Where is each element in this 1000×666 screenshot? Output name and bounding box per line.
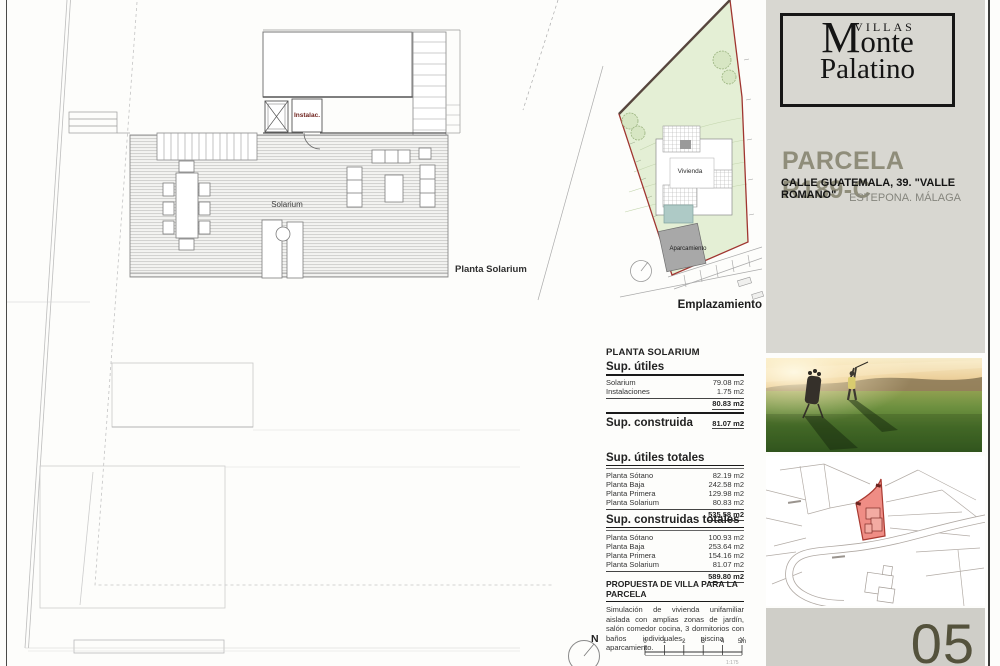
- map-houses: [865, 565, 895, 603]
- north-label: N: [591, 633, 599, 645]
- row-label: Planta Primera: [606, 551, 656, 560]
- page-number-panel: 05: [766, 608, 985, 666]
- sun-lounger: [347, 167, 362, 207]
- row-value: 1.75 m2: [717, 387, 744, 396]
- road-cars: [737, 277, 763, 299]
- sheet-border-right: [988, 0, 990, 666]
- utiles-totales-title: Sup. útiles totales: [606, 452, 744, 466]
- row-value: 129.98 m2: [709, 489, 744, 498]
- row-value: 154.16 m2: [709, 551, 744, 560]
- table-row: Planta Sótano 82.19 m2: [606, 471, 744, 480]
- golf-photo-art: [766, 358, 982, 452]
- table-row: Planta Baja 242.58 m2: [606, 480, 744, 489]
- table-row: Planta Primera 154.16 m2: [606, 551, 744, 560]
- pool: [664, 205, 693, 223]
- logo-monte-text: Monte: [783, 25, 952, 55]
- construida-value: 81.07 m2: [712, 419, 744, 429]
- page-number: 05: [911, 611, 975, 666]
- scale-note: 1:175: [726, 660, 739, 666]
- solarium-floor-plan: Instalac.: [69, 30, 527, 278]
- table-row: Planta Solarium 80.83 m2: [606, 498, 744, 507]
- sheet-border-left: [6, 0, 7, 666]
- vivienda-house: Vivienda: [656, 126, 732, 223]
- site-plan: Vivienda Aparcamiento Emp: [523, 0, 764, 311]
- table-section-header: PLANTA SOLARIUM: [606, 347, 744, 358]
- solarium-room-label: Solarium: [271, 200, 303, 209]
- row-label: Planta Primera: [606, 489, 656, 498]
- emplazamiento-caption: Emplazamiento: [678, 299, 762, 311]
- table-row: Planta Baja 253.64 m2: [606, 542, 744, 551]
- elevator-shaft: [265, 101, 288, 132]
- location-map: [766, 456, 985, 606]
- total-row: 80.83 m2: [606, 398, 744, 410]
- monte-palatino-logo: VILLAS Monte Palatino: [780, 13, 955, 107]
- sun-lounger: [420, 165, 435, 207]
- table-utiles-totales: Sup. útiles totales Planta Sótano 82.19 …: [606, 452, 744, 521]
- table-row: Planta Sótano 100.93 m2: [606, 533, 744, 542]
- table-row: Planta Primera 129.98 m2: [606, 489, 744, 498]
- table-row: Solarium 79.08 m2: [606, 378, 744, 387]
- roof-stair-strip: [413, 32, 446, 135]
- row-value: 79.08 m2: [713, 378, 744, 387]
- row-value: 81.07 m2: [713, 560, 744, 569]
- construida-label: Sup. construida: [606, 417, 693, 429]
- table-row: Instalaciones 1.75 m2: [606, 387, 744, 396]
- row-value: 82.19 m2: [713, 471, 744, 480]
- location-map-art: [766, 456, 985, 606]
- exterior-steps: [69, 112, 130, 133]
- row-label: Planta Solarium: [606, 560, 659, 569]
- address-line2: ESTEPONA. MÁLAGA: [781, 192, 961, 204]
- brand-panel: VILLAS Monte Palatino PARCELA R189-C CAL…: [766, 0, 985, 353]
- construidas-totales-title: Sup. construidas totales: [606, 514, 744, 528]
- row-label: Planta Baja: [606, 542, 644, 551]
- propuesta-block: PROPUESTA DE VILLA PARA LA PARCELA Simul…: [606, 579, 744, 653]
- row-label: Planta Sótano: [606, 471, 653, 480]
- deck-stairs: [157, 133, 257, 160]
- row-value: 253.64 m2: [709, 542, 744, 551]
- propuesta-title: PROPUESTA DE VILLA PARA LA PARCELA: [606, 579, 744, 602]
- total-value: 80.83 m2: [712, 399, 744, 410]
- ghost-parcel-lines: [6, 0, 552, 653]
- row-label: Planta Baja: [606, 480, 644, 489]
- table-construidas-totales: Sup. construidas totales Planta Sótano 1…: [606, 514, 744, 583]
- propuesta-body: Simulación de vivienda unifamiliar aisla…: [606, 605, 744, 653]
- instalac-label: Instalac.: [294, 112, 320, 119]
- sup-utiles-title: Sup. útiles: [606, 361, 744, 376]
- vivienda-label: Vivienda: [678, 168, 703, 175]
- upper-roof-block: [263, 32, 412, 97]
- site-compass: [631, 261, 652, 282]
- row-label: Solarium: [606, 378, 636, 387]
- row-value: 100.93 m2: [709, 533, 744, 542]
- row-label: Instalaciones: [606, 387, 650, 396]
- plan-title: Planta Solarium: [455, 264, 527, 275]
- table-planta-solarium: PLANTA SOLARIUM Sup. útiles Solarium 79.…: [606, 347, 744, 429]
- row-label: Planta Sótano: [606, 533, 653, 542]
- row-value: 80.83 m2: [713, 498, 744, 507]
- row-label: Planta Solarium: [606, 498, 659, 507]
- sofa: [372, 150, 410, 163]
- north-compass: N: [569, 633, 600, 666]
- table-row: Planta Solarium 81.07 m2: [606, 560, 744, 569]
- row-value: 242.58 m2: [709, 480, 744, 489]
- logo-palatino-text: Palatino: [783, 55, 952, 83]
- sup-construida-row: Sup. construida 81.07 m2: [606, 414, 744, 429]
- aparcamiento-label: Aparcamiento: [669, 246, 707, 252]
- dining-table: [176, 173, 198, 238]
- sidebar: VILLAS Monte Palatino PARCELA R189-C CAL…: [766, 0, 985, 666]
- brochure-page: Instalac.: [0, 0, 1000, 666]
- golf-course-photo: [766, 358, 982, 452]
